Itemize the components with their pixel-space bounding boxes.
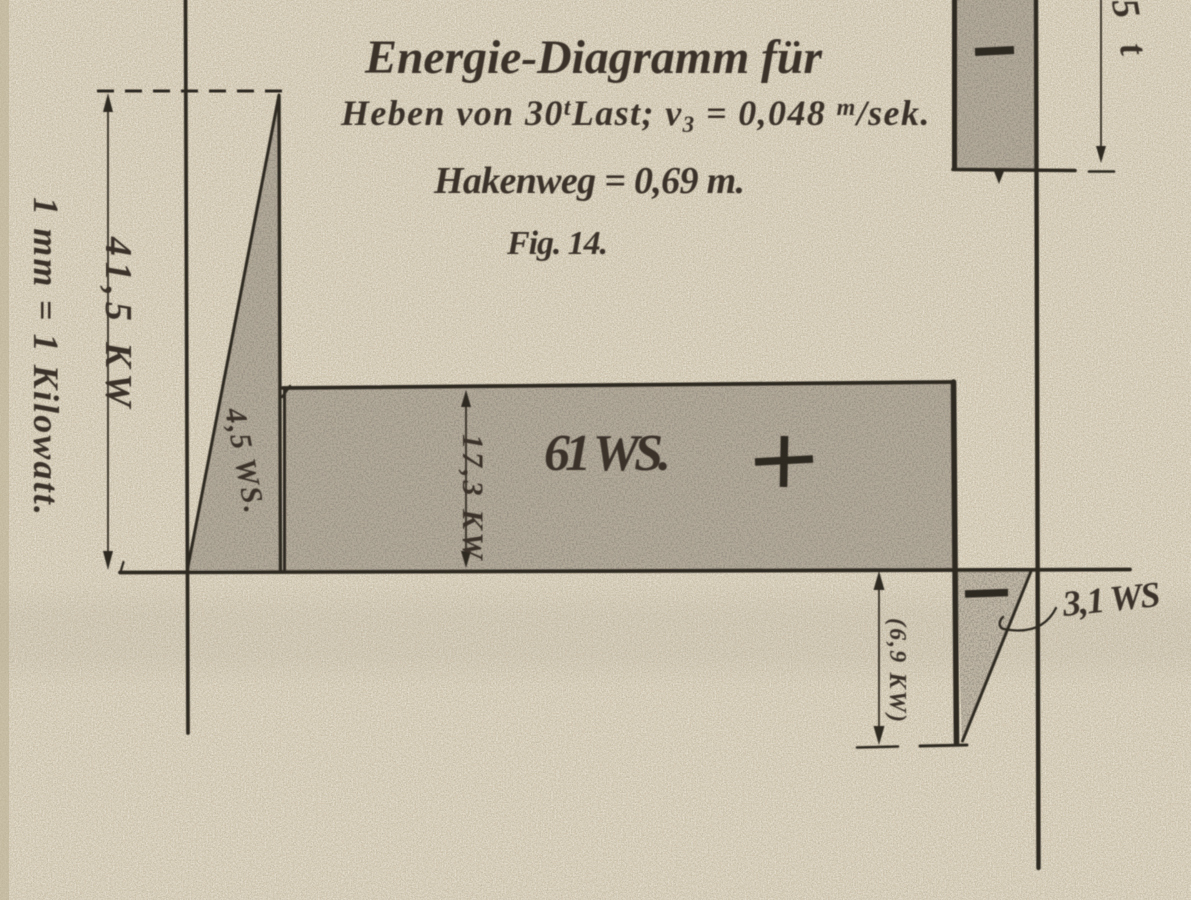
svg-text:61 WS.: 61 WS. <box>544 425 671 482</box>
svg-text:Energie-Diagramm für: Energie-Diagramm für <box>364 31 823 84</box>
svg-text:1 mm = 1 Kilowatt.: 1 mm = 1 Kilowatt. <box>26 197 66 515</box>
svg-text:Fig. 14.: Fig. 14. <box>506 225 608 262</box>
svg-text:Hakenweg = 0,69 m.: Hakenweg = 0,69 m. <box>433 160 745 202</box>
svg-text:(6,9 KW): (6,9 KW) <box>884 618 910 722</box>
